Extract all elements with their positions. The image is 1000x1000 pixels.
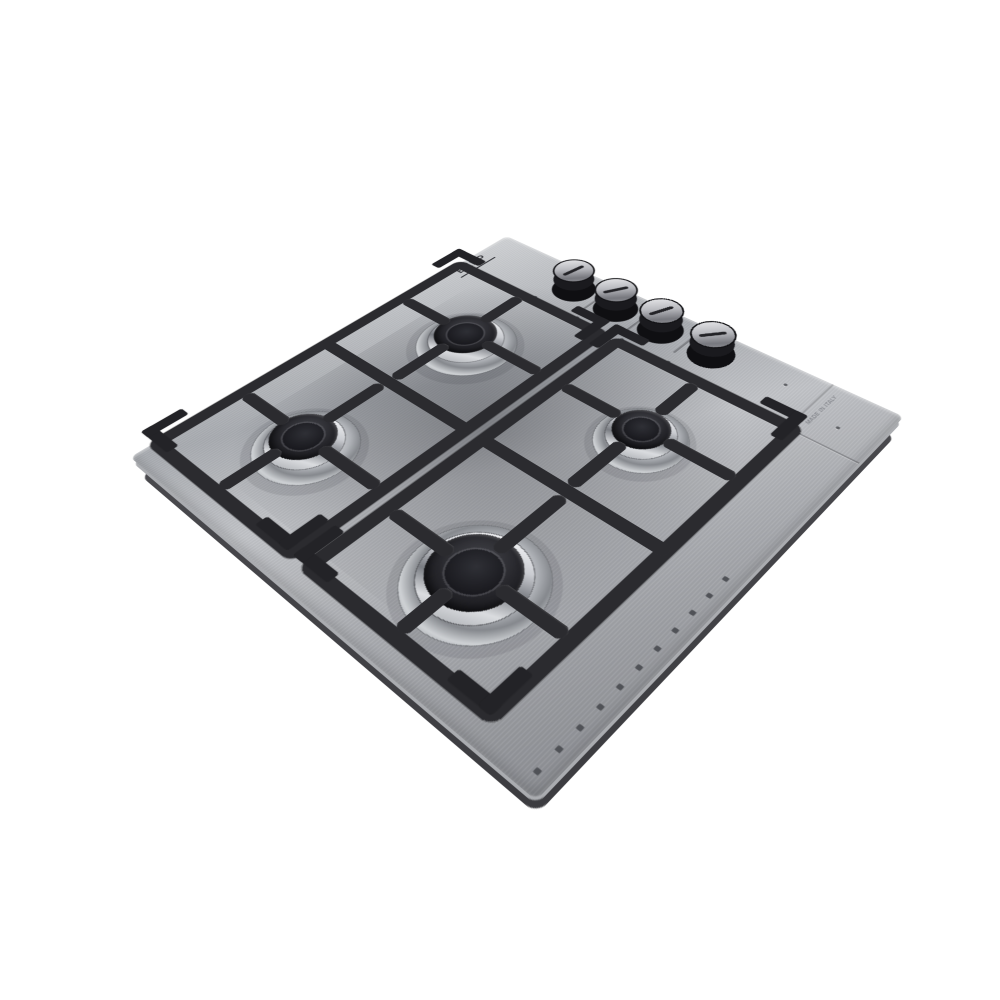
product-photo-stage: EXEP MADE IN ITALY [0,0,1000,1000]
vent-hole [705,592,713,599]
vent-hole [575,724,584,732]
vent-hole [688,609,697,616]
vent-hole [616,683,625,691]
gas-cooktop: EXEP MADE IN ITALY [130,236,904,801]
vent-hole [533,767,543,776]
vent-hole [554,745,564,754]
fixing-screw [835,426,841,430]
vent-hole [596,703,605,711]
vent-hole [722,576,730,582]
vent-hole [653,645,662,652]
vent-hole [635,664,644,671]
vent-hole [671,627,680,634]
